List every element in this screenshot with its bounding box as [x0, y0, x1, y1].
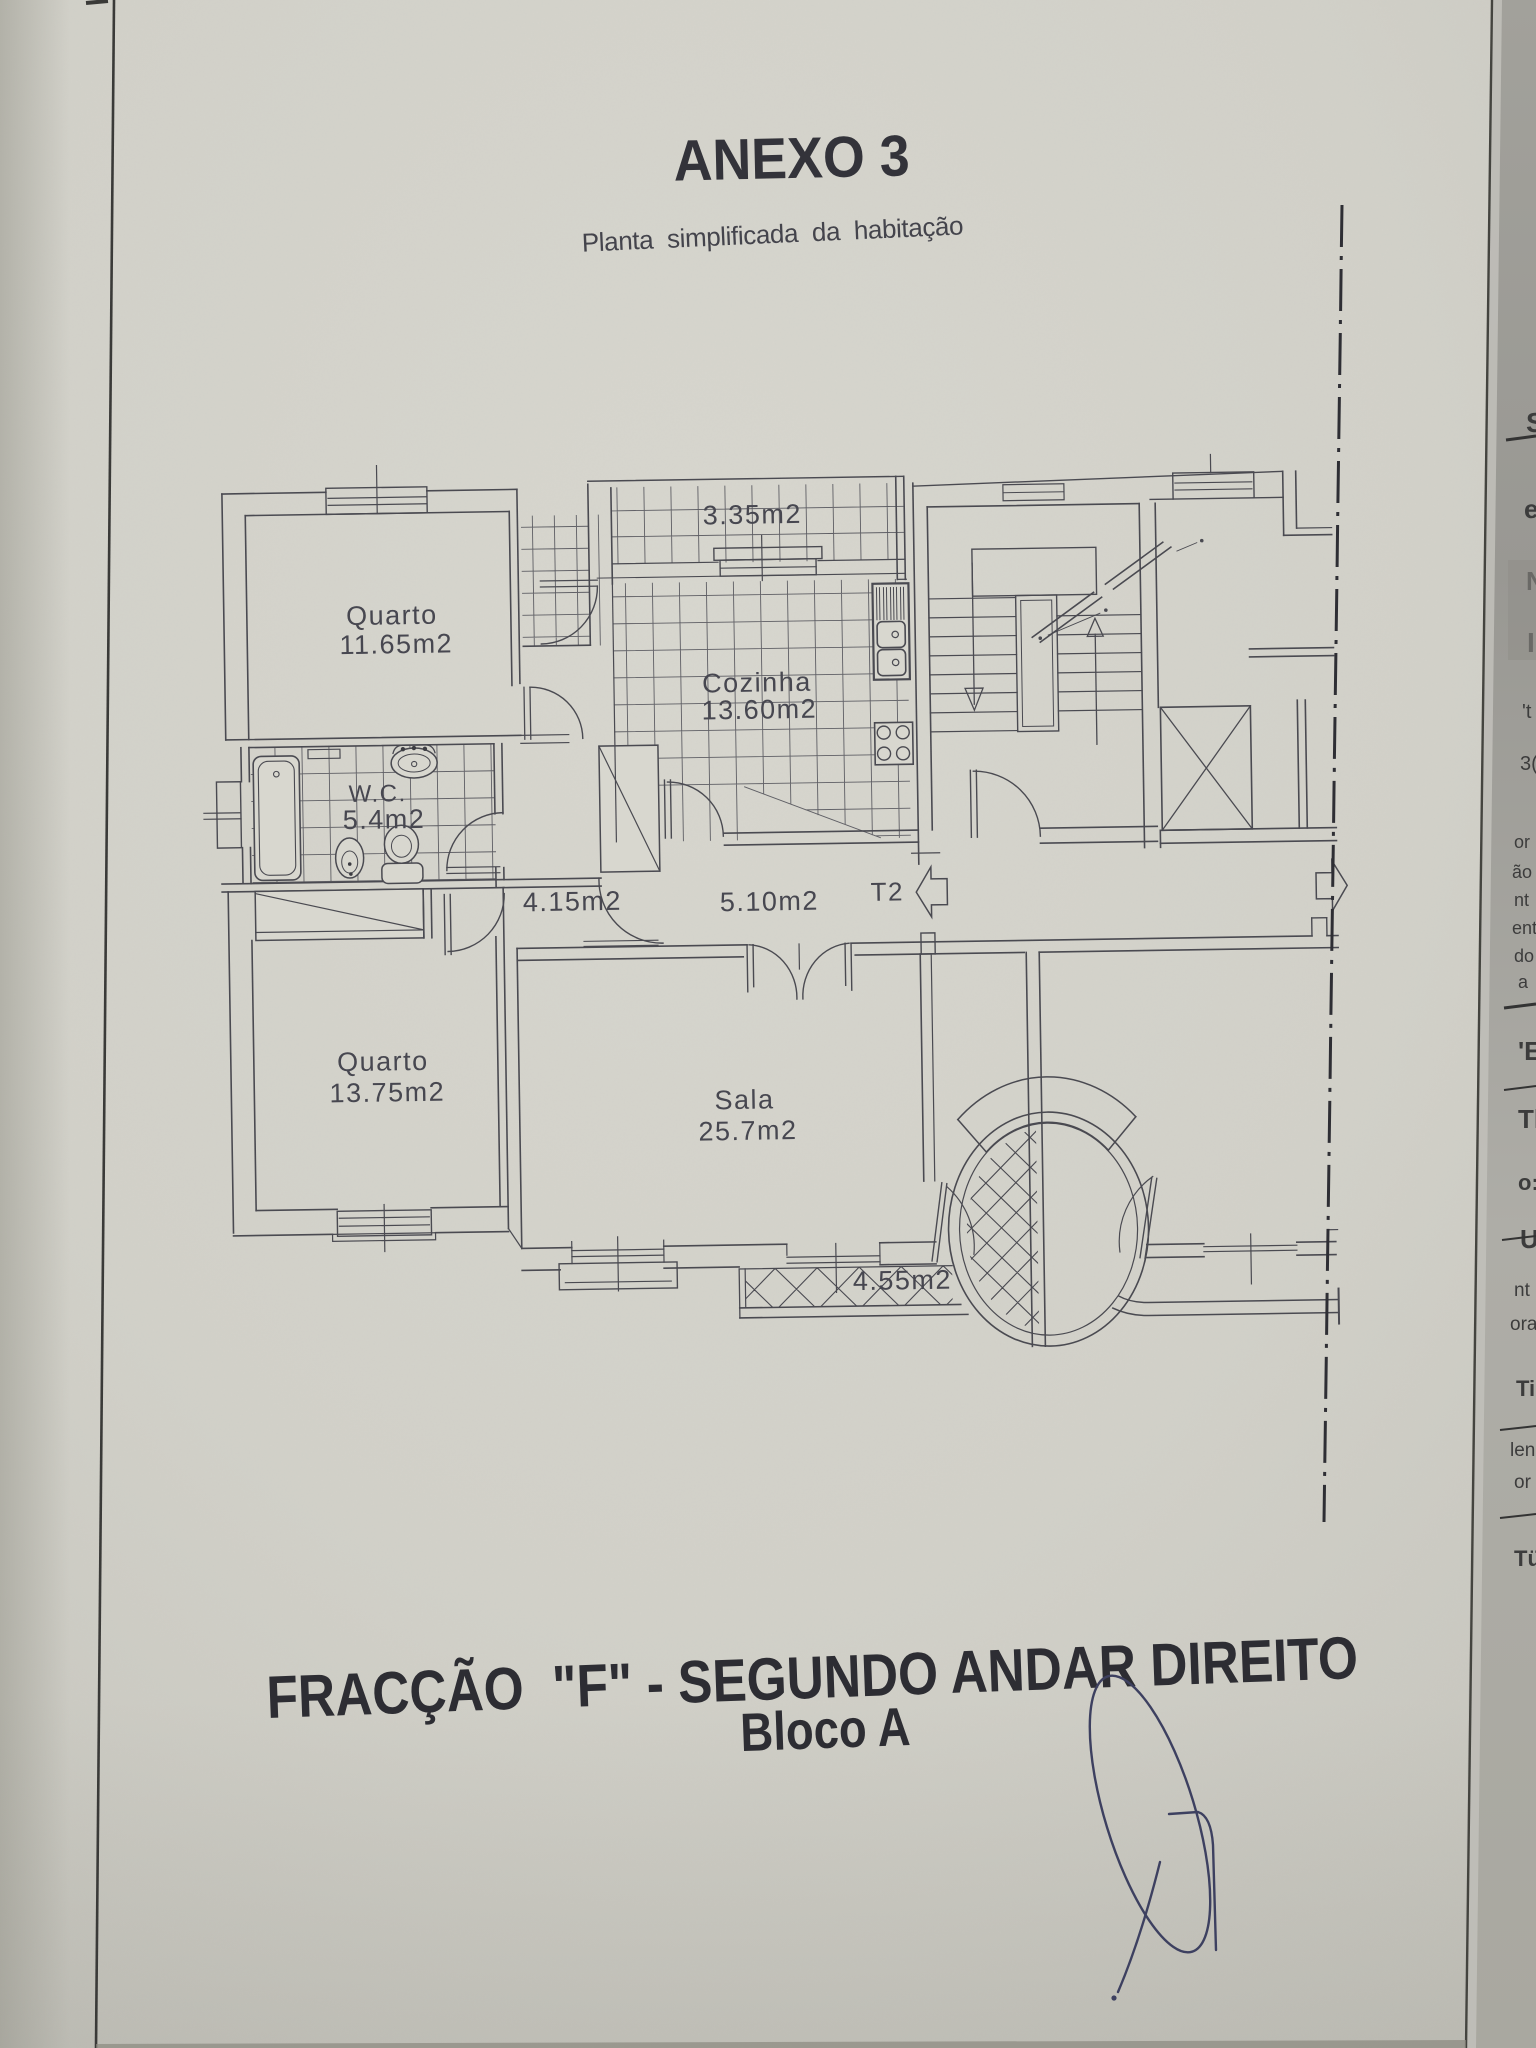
svg-text:ão: ão [1512, 862, 1532, 882]
svg-text:5.10m2: 5.10m2 [720, 886, 820, 918]
svg-text:ANEXO 3: ANEXO 3 [673, 123, 910, 193]
svg-text:'E: 'E [1518, 1036, 1536, 1066]
svg-text:25.7m2: 25.7m2 [698, 1115, 798, 1147]
svg-text:4.15m2: 4.15m2 [523, 886, 623, 918]
svg-text:Bloco A: Bloco A [739, 1697, 911, 1763]
svg-text:nt: nt [1514, 890, 1529, 910]
svg-text:4.55m2: 4.55m2 [853, 1265, 953, 1297]
svg-text:or: or [1514, 832, 1530, 852]
svg-text:3(: 3( [1520, 753, 1536, 775]
svg-text:nt: nt [1514, 1280, 1531, 1301]
svg-text:ent: ent [1512, 918, 1536, 938]
svg-text:'t: 't [1522, 701, 1532, 723]
svg-text:T2: T2 [870, 876, 904, 907]
svg-text:len: len [1510, 1440, 1535, 1461]
svg-text:3.35m2: 3.35m2 [703, 499, 803, 531]
svg-text:U: U [1520, 1224, 1536, 1254]
svg-text:Tü: Tü [1514, 1546, 1536, 1571]
svg-text:13.75m2: 13.75m2 [329, 1077, 445, 1109]
svg-text:a: a [1518, 972, 1529, 992]
svg-text:Tl: Tl [1518, 1104, 1536, 1134]
svg-text:Quarto: Quarto [346, 600, 438, 631]
svg-text:o:: o: [1518, 1170, 1536, 1195]
svg-text:Ti: Ti [1516, 1376, 1535, 1401]
svg-text:13.60m2: 13.60m2 [701, 694, 817, 726]
svg-text:Quarto: Quarto [337, 1046, 429, 1077]
svg-text:Sala: Sala [714, 1084, 775, 1115]
svg-text:ora: ora [1510, 1314, 1536, 1335]
svg-text:11.65m2: 11.65m2 [339, 628, 453, 660]
svg-text:S: S [1526, 407, 1536, 438]
svg-text:or: or [1514, 1472, 1532, 1493]
svg-text:5.4m2: 5.4m2 [343, 804, 426, 835]
svg-text:e: e [1524, 494, 1536, 524]
svg-text:do: do [1514, 946, 1534, 966]
